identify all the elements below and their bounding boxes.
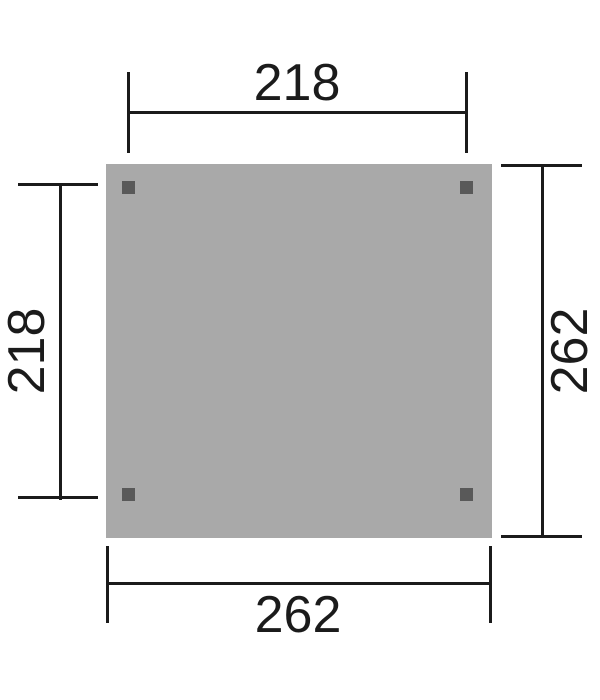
dimension-left-tick-bottom xyxy=(18,496,98,499)
dimension-top-tick-right xyxy=(465,72,468,153)
dimension-top-label: 218 xyxy=(254,57,341,109)
dimension-left-tick-top xyxy=(18,183,98,186)
dimension-right-label: 262 xyxy=(544,308,596,395)
dimension-right-tick-bottom xyxy=(501,535,582,538)
dimension-top-tick-left xyxy=(127,72,130,153)
post-marker-bottom-right-icon xyxy=(460,488,473,501)
technical-drawing-canvas: 218 218 262 262 xyxy=(0,0,600,700)
plan-surface xyxy=(106,164,492,538)
dimension-bottom-label: 262 xyxy=(255,589,342,641)
dimension-left-label: 218 xyxy=(1,308,53,395)
dimension-left-line xyxy=(59,183,62,500)
post-marker-top-right-icon xyxy=(460,181,473,194)
dimension-bottom-line xyxy=(106,582,492,585)
dimension-right-tick-top xyxy=(501,164,582,167)
post-marker-top-left-icon xyxy=(122,181,135,194)
dimension-bottom-tick-left xyxy=(106,546,109,623)
dimension-bottom-tick-right xyxy=(489,546,492,623)
post-marker-bottom-left-icon xyxy=(122,488,135,501)
